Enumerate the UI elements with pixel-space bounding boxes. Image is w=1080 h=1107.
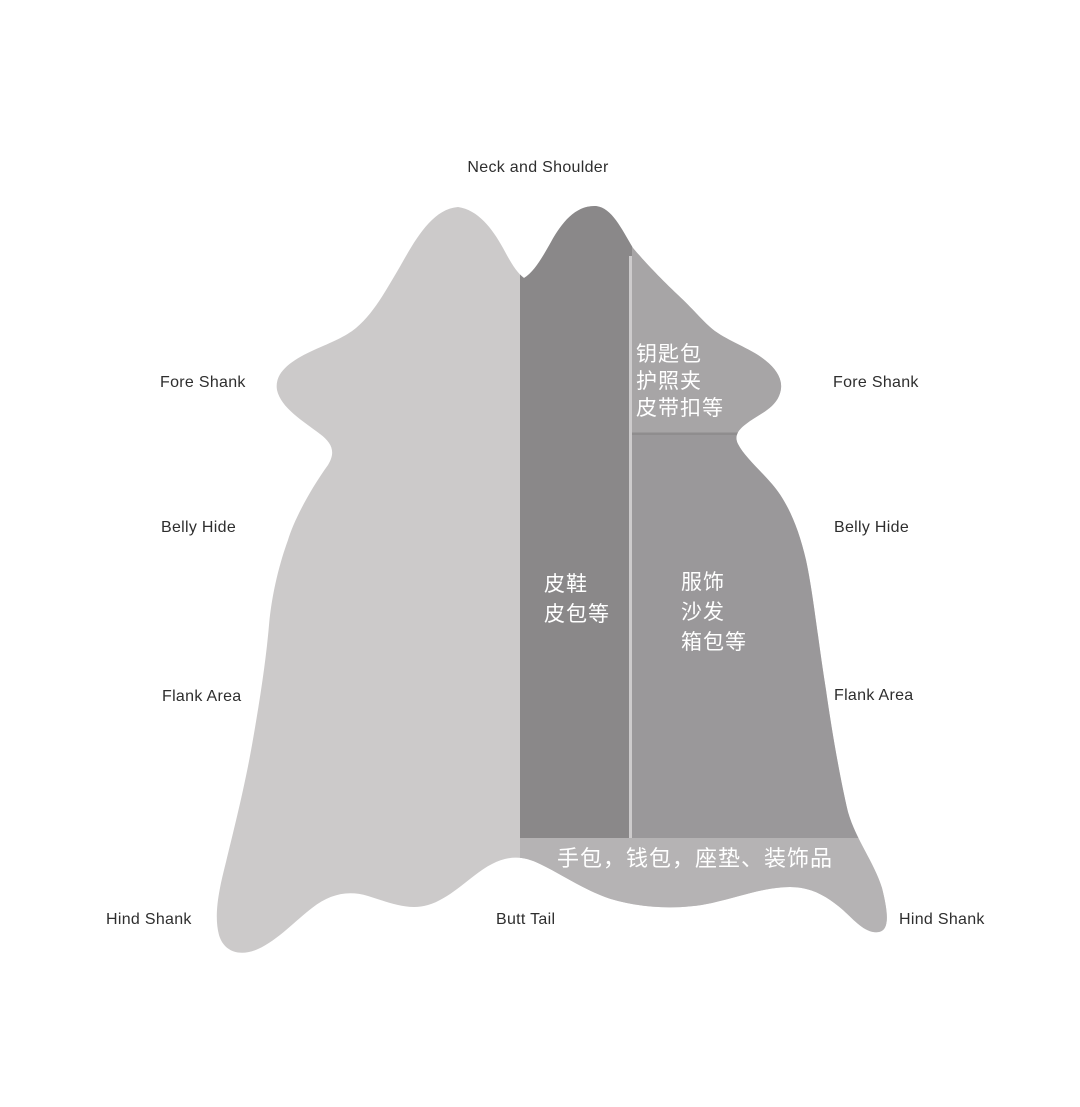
region-label-line: 手包，钱包，座垫、装饰品 [557,845,833,873]
region-right [632,434,900,838]
region-label-line: 服饰 [681,568,747,598]
region-label-line: 皮带扣等 [636,395,724,422]
label-fore-shank-right: Fore Shank [833,374,919,392]
region-label-center-strip: 皮鞋 皮包等 [544,570,610,630]
label-flank-area-left: Flank Area [162,688,241,706]
label-belly-hide-right: Belly Hide [834,519,909,537]
region-label-line: 护照夹 [636,368,724,395]
region-label-line: 钥匙包 [636,341,724,368]
region-label-line: 箱包等 [681,628,747,658]
cowhide-regions-diagram: Neck and Shoulder Fore Shank Belly Hide … [0,0,1080,1107]
region-label-line: 皮鞋 [544,570,610,600]
label-belly-hide-left: Belly Hide [161,519,236,537]
label-neck-and-shoulder: Neck and Shoulder [467,159,608,177]
label-hind-shank-left: Hind Shank [106,911,192,929]
label-flank-area-right: Flank Area [834,687,913,705]
label-hind-shank-right: Hind Shank [899,911,985,929]
region-label-line: 沙发 [681,598,747,628]
divider-vertical [629,256,632,838]
region-label-bottom-strip: 手包，钱包，座垫、装饰品 [557,845,833,873]
region-label-line: 皮包等 [544,600,610,630]
label-butt-tail: Butt Tail [496,911,555,929]
region-center-strip [520,0,632,838]
divider-horizontal [632,433,762,436]
region-label-right: 服饰 沙发 箱包等 [681,568,747,658]
label-fore-shank-left: Fore Shank [160,374,246,392]
region-label-upper-right: 钥匙包 护照夹 皮带扣等 [636,341,724,422]
